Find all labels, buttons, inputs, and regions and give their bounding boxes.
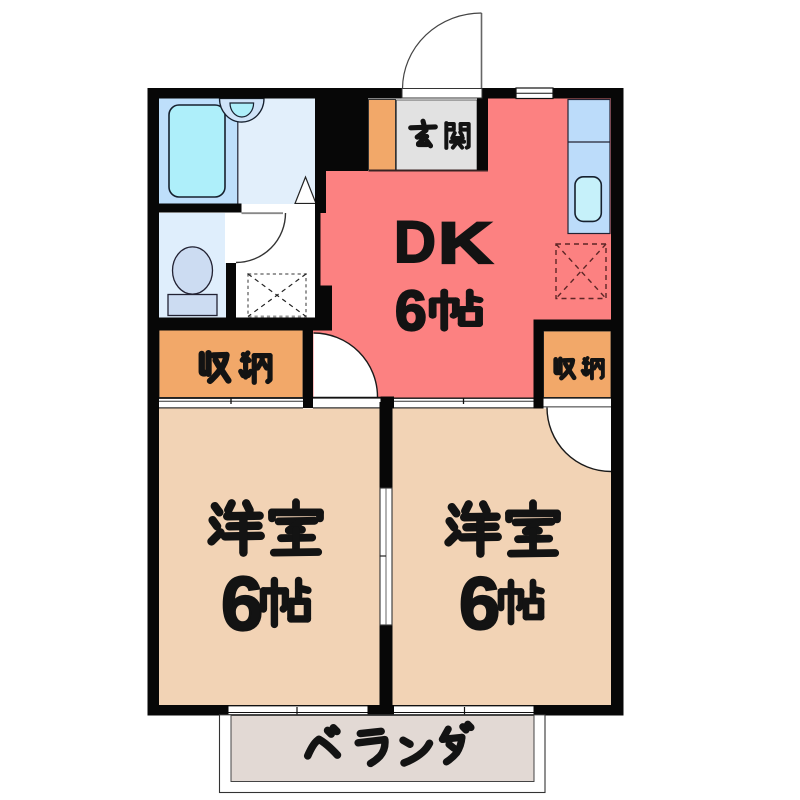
svg-text:D: D — [394, 210, 436, 275]
svg-text:6: 6 — [459, 562, 500, 645]
svg-text:6: 6 — [395, 279, 427, 343]
svg-text:6: 6 — [221, 562, 263, 647]
svg-text:K: K — [438, 211, 492, 276]
